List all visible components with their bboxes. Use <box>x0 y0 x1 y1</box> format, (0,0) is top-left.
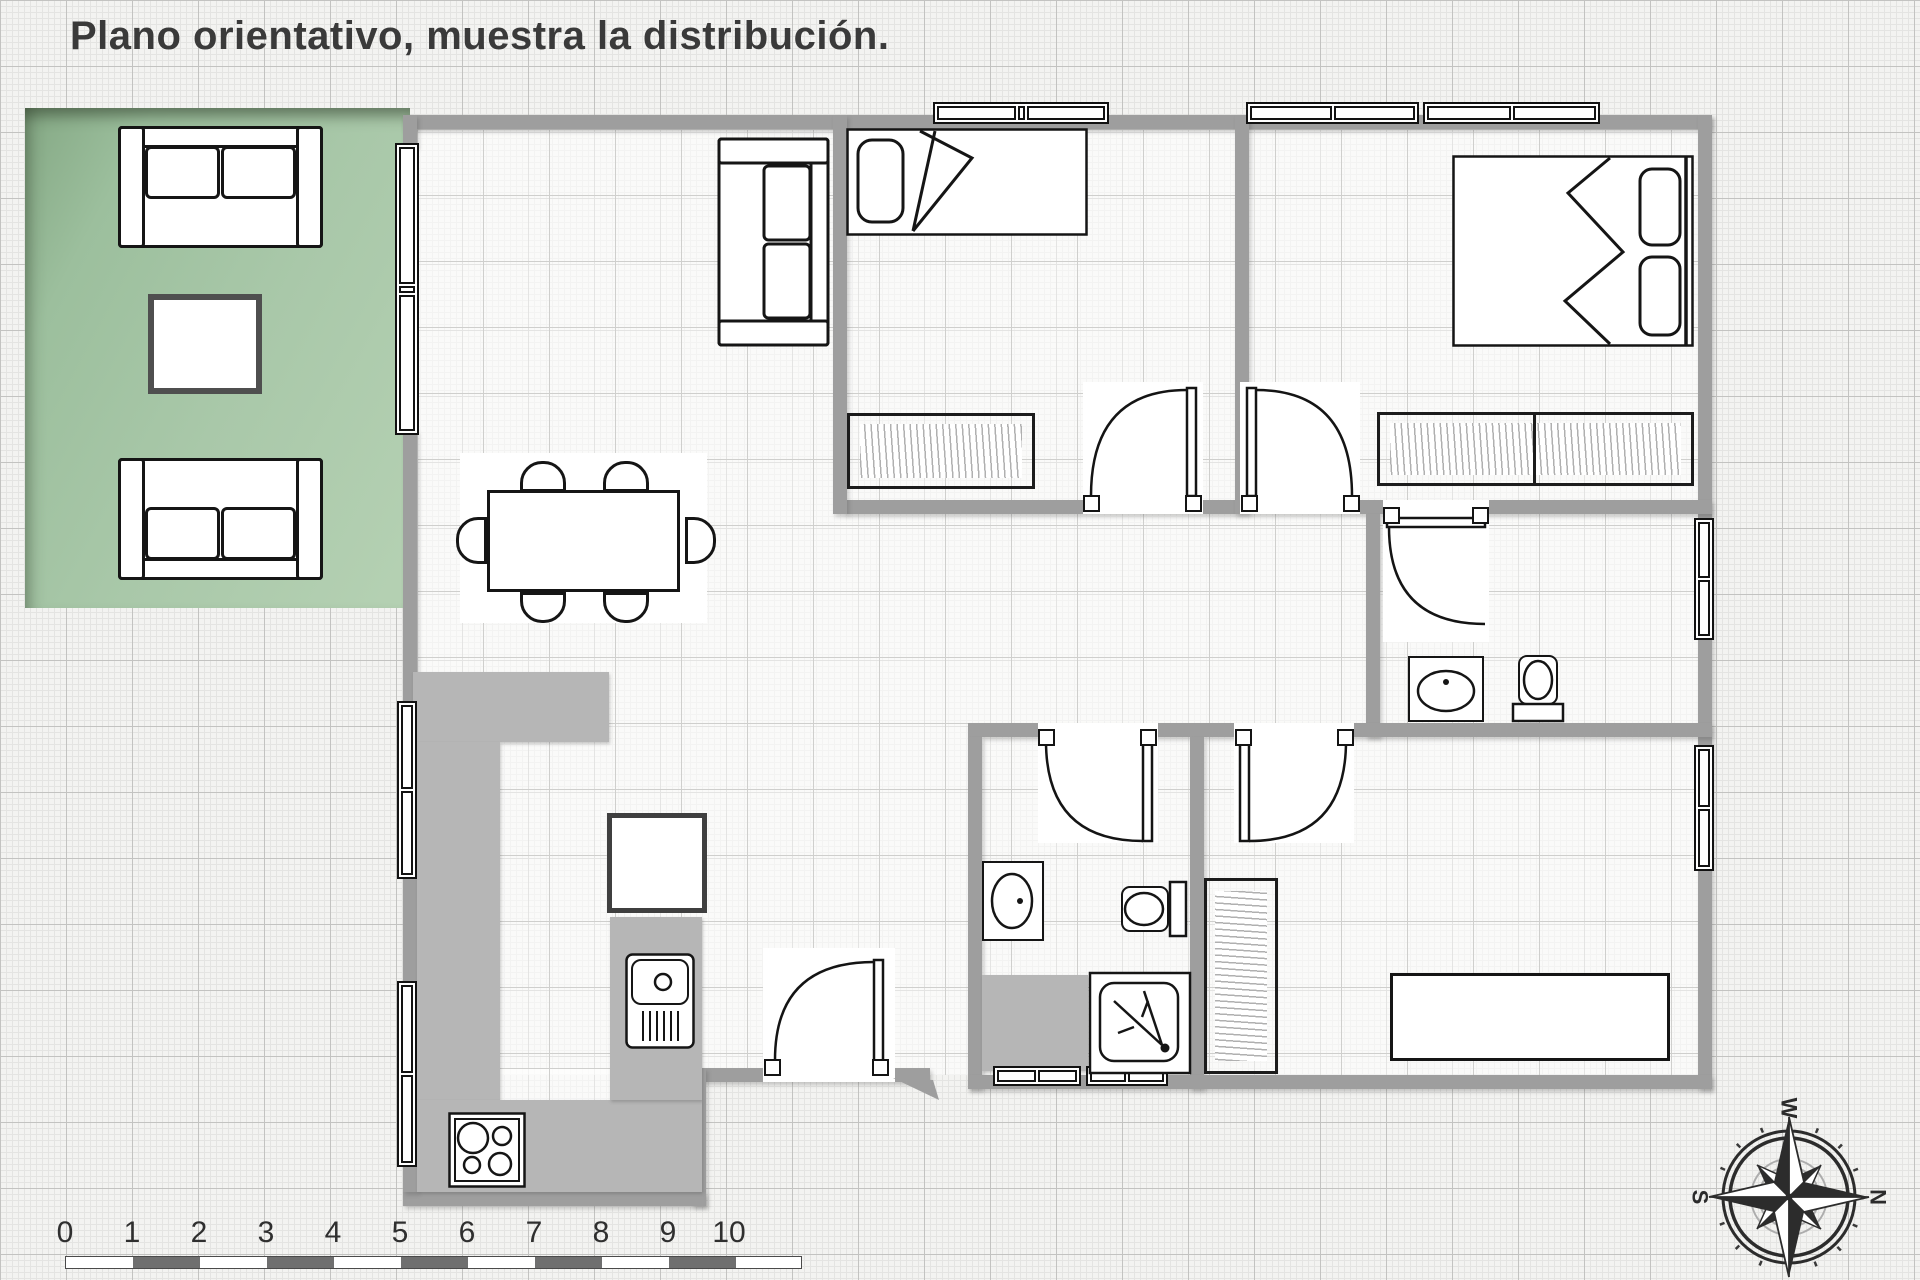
scale-segment <box>334 1257 401 1268</box>
scale-label: 1 <box>115 1216 149 1250</box>
wall-kitchen-bottom <box>403 1192 706 1206</box>
sofa-arm <box>118 458 145 580</box>
sofa-bottom <box>118 458 323 580</box>
sofa-cushion <box>221 146 297 200</box>
sofa-cushion <box>762 242 811 319</box>
scale-segment <box>66 1257 133 1268</box>
toilet-icon <box>1118 879 1188 939</box>
sofa-back <box>809 158 829 325</box>
window-pane <box>1698 809 1710 867</box>
window-pane <box>1698 749 1710 807</box>
stove-icon <box>448 1112 526 1188</box>
compass-label-top: W <box>1777 1098 1802 1119</box>
scale-label: 0 <box>48 1216 82 1250</box>
sofa-top <box>118 126 323 248</box>
window-bathroom2-a <box>993 1066 1081 1086</box>
window-mullion <box>399 286 415 293</box>
sofa-back <box>139 558 303 580</box>
wall-bathroom2-bedroom3-divider <box>1190 737 1204 1089</box>
wardrobe-bedroom3 <box>1204 878 1278 1074</box>
scale-segment <box>200 1257 267 1268</box>
wardrobe-divider <box>1533 412 1536 486</box>
sofa-arm <box>718 138 830 165</box>
window-pane <box>1698 522 1710 578</box>
sofa-cushion <box>762 165 811 242</box>
wall-bedroom1-left <box>833 115 847 514</box>
window-pane <box>399 295 415 432</box>
floor-plan-canvas: Plano orientativo, muestra la distribuci… <box>0 0 1920 1280</box>
sofa-back <box>139 126 303 148</box>
door-bedroom1 <box>1083 382 1203 514</box>
window-pane <box>937 106 1016 120</box>
scale-segment <box>736 1257 801 1268</box>
kitchen-counter-top <box>413 672 609 742</box>
sofa-dining <box>718 138 830 347</box>
washbasin-icon <box>1408 656 1484 722</box>
sofa-arm <box>296 126 323 248</box>
scale-label: 2 <box>182 1216 216 1250</box>
door-entrance <box>763 948 895 1082</box>
sofa-arm <box>118 126 145 248</box>
window-kitchen-1 <box>397 701 417 879</box>
scale-label: 5 <box>383 1216 417 1250</box>
kitchen-sink-icon <box>625 953 695 1049</box>
scale-label: 9 <box>651 1216 685 1250</box>
window-pane <box>401 1075 413 1163</box>
window-bedroom1 <box>933 102 1109 124</box>
coffee-table <box>148 294 262 394</box>
wardrobe-bedroom1 <box>847 413 1035 489</box>
window-pane <box>1513 106 1597 120</box>
washbasin-icon <box>982 861 1044 941</box>
window-pane <box>1334 106 1416 120</box>
compass-rose-icon: W N E S <box>1694 1102 1884 1280</box>
window-bathroom-mid <box>1694 518 1714 640</box>
toilet-icon <box>1512 654 1564 724</box>
dining-table <box>487 490 680 592</box>
sofa-arm <box>296 458 323 580</box>
scale-label: 10 <box>712 1216 746 1250</box>
compass-label-left: S <box>1688 1190 1713 1205</box>
wall-bathroom-mid-left <box>1366 514 1380 737</box>
scale-label: 3 <box>249 1216 283 1250</box>
desk-table <box>1390 973 1670 1061</box>
window-mullion <box>1018 106 1025 120</box>
scale-label: 7 <box>517 1216 551 1250</box>
bathroom-counter <box>982 975 1088 1071</box>
sofa-cushion <box>145 507 221 561</box>
fridge <box>607 813 707 913</box>
page-title: Plano orientativo, muestra la distribuci… <box>70 14 889 59</box>
scale-segment <box>468 1257 535 1268</box>
shower-icon <box>1088 971 1192 1075</box>
sofa-cushion <box>145 146 221 200</box>
double-bed-icon <box>1452 155 1694 347</box>
sofa-cushion <box>221 507 297 561</box>
door-bedroom2 <box>1240 382 1360 514</box>
window-bedroom2-a <box>1246 102 1419 124</box>
window-pane <box>1027 106 1106 120</box>
window-bedroom3 <box>1694 745 1714 871</box>
window-bedroom2-b <box>1423 102 1600 124</box>
window-pane <box>1698 580 1710 636</box>
wardrobe-bedroom2 <box>1377 412 1694 486</box>
window-pane <box>401 705 413 789</box>
single-bed-icon <box>846 128 1088 236</box>
wall-break-arrow-icon <box>893 1078 941 1102</box>
scale-label: 6 <box>450 1216 484 1250</box>
window-pane <box>1250 106 1332 120</box>
window-pane <box>401 985 413 1073</box>
compass-label-right: N <box>1866 1189 1891 1205</box>
window-pane <box>401 791 413 875</box>
window-pane <box>1427 106 1511 120</box>
door-bathroom2 <box>1038 723 1158 843</box>
door-bathroom-mid <box>1383 500 1489 642</box>
scale-segment <box>602 1257 669 1268</box>
kitchen-counter-left <box>417 742 500 1100</box>
sofa-arm <box>718 319 830 346</box>
window-pane <box>1038 1070 1077 1082</box>
door-bedroom3 <box>1234 723 1354 843</box>
wall-bathroom2-left <box>968 737 982 1089</box>
window-kitchen-2 <box>397 981 417 1167</box>
window-living <box>395 143 419 435</box>
scale-label: 4 <box>316 1216 350 1250</box>
window-pane <box>997 1070 1036 1082</box>
scale-label: 8 <box>584 1216 618 1250</box>
window-pane <box>399 147 415 284</box>
scale-bar <box>65 1256 802 1269</box>
